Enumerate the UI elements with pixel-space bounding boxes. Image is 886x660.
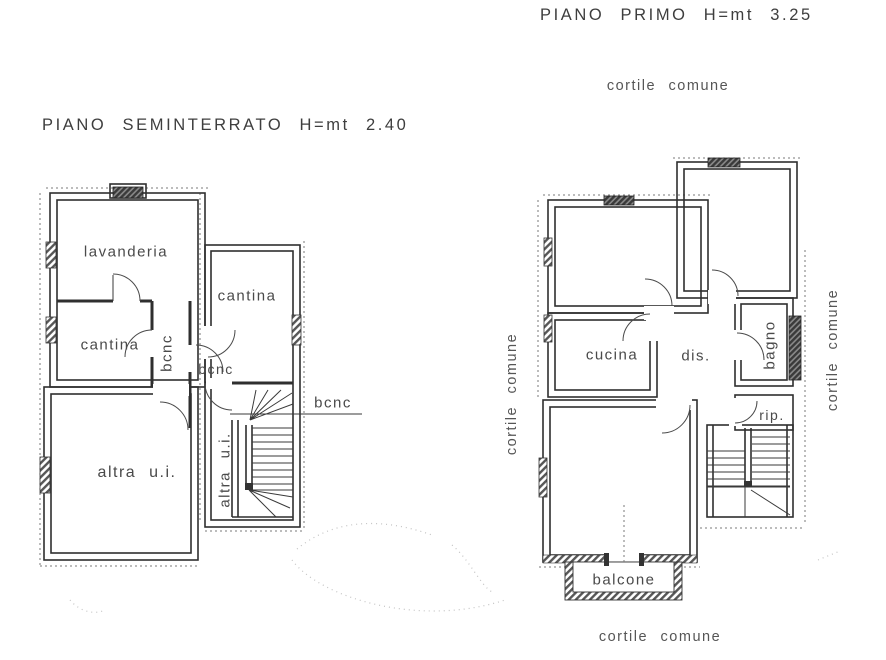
room-label-bcnc-corridor: bcnc [159, 334, 176, 372]
seminterrato-stairs [232, 390, 293, 517]
room-label-lavanderia: lavanderia [84, 244, 168, 261]
room-label-dis: dis. [681, 348, 710, 365]
floor-plan-drawing [0, 0, 886, 660]
room-label-cantina-right: cantina [218, 288, 277, 305]
room-label-cucina: cucina [586, 347, 638, 364]
scan-artifact-scribbles [70, 524, 840, 613]
plan-title-seminterrato: PIANO SEMINTERRATO H=mt 2.40 [42, 116, 408, 135]
room-label-cantina-left: cantina [81, 337, 140, 354]
plan-title-primo: PIANO PRIMO H=mt 3.25 [540, 6, 813, 25]
courtyard-label-bottom: cortile comune [599, 629, 721, 645]
room-label-altra-ui: altra u.i. [98, 464, 177, 482]
courtyard-label-right: cortile comune [825, 289, 841, 411]
room-label-rip: rip. [759, 407, 784, 423]
courtyard-label-top: cortile comune [607, 78, 729, 94]
room-label-bcnc-entry: bcnc [198, 361, 234, 377]
scanned-floorplan-page: PIANO PRIMO H=mt 3.25 PIANO SEMINTERRATO… [0, 0, 886, 660]
primo-stairs [707, 428, 790, 517]
courtyard-label-left: cortile comune [504, 333, 520, 455]
vent-window [113, 187, 143, 198]
primo-outline [543, 162, 797, 562]
seminterrato-outline [44, 184, 300, 560]
primo-plan [538, 158, 805, 600]
room-label-bcnc-callout: bcnc [314, 395, 352, 412]
room-label-altra-ui-stair: altra u.i. [217, 432, 234, 507]
room-label-bagno: bagno [762, 320, 779, 369]
room-label-balcone: balcone [592, 572, 655, 589]
